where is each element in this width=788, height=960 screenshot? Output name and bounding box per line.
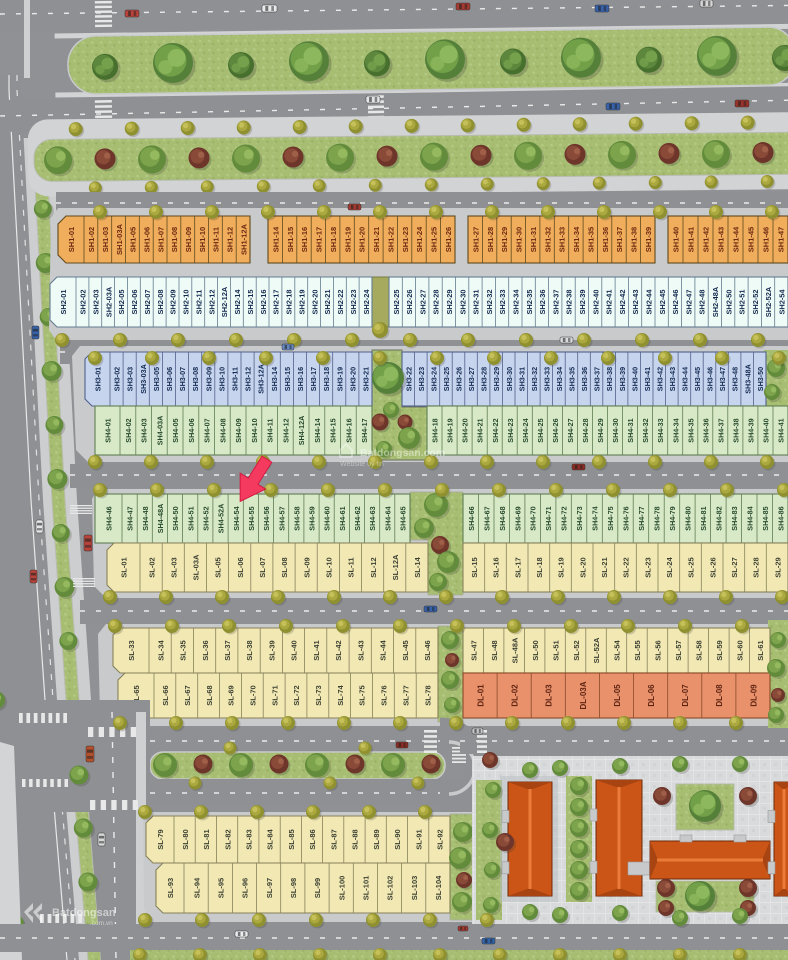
svg-text:SL-22: SL-22 bbox=[622, 557, 631, 577]
svg-text:SL-44: SL-44 bbox=[379, 639, 388, 660]
svg-text:SL-74: SL-74 bbox=[336, 684, 345, 705]
svg-text:SH3-32: SH3-32 bbox=[530, 367, 539, 391]
svg-text:SL-66: SL-66 bbox=[161, 685, 170, 705]
svg-text:SH4-63: SH4-63 bbox=[368, 506, 377, 530]
svg-text:SH1-22: SH1-22 bbox=[387, 227, 396, 252]
svg-text:SL-61: SL-61 bbox=[756, 640, 765, 660]
svg-text:SH3-25: SH3-25 bbox=[442, 367, 451, 391]
svg-text:SH1-18: SH1-18 bbox=[329, 227, 338, 252]
svg-text:SH2-35: SH2-35 bbox=[525, 289, 534, 314]
svg-text:SL-17: SL-17 bbox=[513, 557, 522, 577]
svg-text:SH4-69: SH4-69 bbox=[513, 506, 522, 530]
svg-text:SH3-26: SH3-26 bbox=[455, 367, 464, 391]
svg-text:SH2-23: SH2-23 bbox=[349, 289, 358, 314]
svg-text:SH4-16: SH4-16 bbox=[345, 418, 354, 442]
svg-text:SL-72: SL-72 bbox=[292, 685, 301, 705]
svg-text:SH4-84: SH4-84 bbox=[745, 506, 754, 530]
svg-text:SL-21: SL-21 bbox=[600, 557, 609, 577]
svg-text:SH1-39: SH1-39 bbox=[644, 227, 653, 252]
svg-text:SH4-34: SH4-34 bbox=[671, 418, 680, 442]
svg-text:SL-99: SL-99 bbox=[313, 878, 322, 898]
svg-text:SL-03: SL-03 bbox=[169, 557, 178, 577]
svg-text:SH2-54: SH2-54 bbox=[778, 289, 787, 315]
svg-text:SH1-11: SH1-11 bbox=[212, 227, 221, 252]
svg-text:SH4-78: SH4-78 bbox=[653, 506, 662, 530]
svg-text:SH3-27: SH3-27 bbox=[467, 367, 476, 391]
svg-text:SH1-23: SH1-23 bbox=[401, 227, 410, 252]
svg-text:SH3-42: SH3-42 bbox=[655, 367, 664, 391]
svg-text:SH4-48A: SH4-48A bbox=[156, 504, 165, 534]
svg-text:SH4-33: SH4-33 bbox=[656, 418, 665, 442]
svg-text:SH2-26: SH2-26 bbox=[405, 289, 414, 314]
svg-text:SH4-23: SH4-23 bbox=[506, 418, 515, 442]
svg-text:SL-56: SL-56 bbox=[654, 640, 663, 660]
svg-text:SH4-25: SH4-25 bbox=[536, 418, 545, 442]
svg-text:SH4-52: SH4-52 bbox=[201, 506, 210, 530]
svg-text:SH2-12A: SH2-12A bbox=[220, 286, 229, 317]
svg-text:SH2-33: SH2-33 bbox=[498, 289, 507, 314]
svg-text:SH4-26: SH4-26 bbox=[551, 418, 560, 442]
svg-text:SL-96: SL-96 bbox=[241, 878, 250, 898]
svg-text:SL-33: SL-33 bbox=[127, 640, 136, 660]
svg-text:SH2-40: SH2-40 bbox=[591, 289, 600, 314]
svg-text:Batdongsan: Batdongsan bbox=[52, 907, 116, 919]
svg-text:SH1-02: SH1-02 bbox=[87, 227, 96, 252]
svg-text:SH3-45: SH3-45 bbox=[693, 367, 702, 391]
svg-text:SH4-82: SH4-82 bbox=[715, 506, 724, 530]
svg-text:SL-47: SL-47 bbox=[469, 640, 478, 660]
svg-text:SL-84: SL-84 bbox=[266, 828, 275, 849]
svg-text:SL-68: SL-68 bbox=[205, 685, 214, 705]
svg-text:SH1-44: SH1-44 bbox=[732, 226, 741, 252]
svg-text:SH4-48: SH4-48 bbox=[141, 506, 150, 530]
svg-text:SH4-24: SH4-24 bbox=[521, 418, 530, 442]
svg-text:SH2-52A: SH2-52A bbox=[764, 286, 773, 317]
svg-text:SH1-14: SH1-14 bbox=[271, 226, 280, 252]
svg-text:SH3-07: SH3-07 bbox=[178, 367, 187, 391]
svg-text:SH4-15: SH4-15 bbox=[329, 418, 338, 442]
svg-text:SH1-16: SH1-16 bbox=[300, 227, 309, 252]
svg-text:DL-05: DL-05 bbox=[613, 684, 622, 707]
svg-text:SH4-05: SH4-05 bbox=[171, 418, 180, 442]
svg-text:SH4-83: SH4-83 bbox=[730, 506, 739, 530]
svg-text:SL-60: SL-60 bbox=[736, 640, 745, 660]
svg-text:SH2-27: SH2-27 bbox=[419, 289, 428, 314]
svg-text:SH3-20: SH3-20 bbox=[348, 367, 357, 391]
svg-text:SL-69: SL-69 bbox=[227, 685, 236, 705]
svg-text:SH4-06: SH4-06 bbox=[187, 418, 196, 442]
svg-text:SH4-79: SH4-79 bbox=[668, 506, 677, 530]
svg-text:SL-23: SL-23 bbox=[643, 557, 652, 577]
svg-text:SH4-10: SH4-10 bbox=[250, 418, 259, 442]
svg-text:SH4-86: SH4-86 bbox=[776, 506, 785, 530]
svg-text:SH3-03: SH3-03 bbox=[126, 367, 135, 391]
svg-text:SH4-12: SH4-12 bbox=[282, 418, 291, 442]
svg-text:SH4-29: SH4-29 bbox=[596, 418, 605, 442]
svg-text:SL-10: SL-10 bbox=[325, 557, 334, 577]
svg-text:SH2-48: SH2-48 bbox=[698, 289, 707, 314]
svg-text:SH2-39: SH2-39 bbox=[578, 289, 587, 314]
svg-text:SH4-57: SH4-57 bbox=[277, 506, 286, 530]
svg-text:SH4-68: SH4-68 bbox=[498, 506, 507, 530]
svg-text:SH4-21: SH4-21 bbox=[476, 418, 485, 442]
svg-text:SH1-30: SH1-30 bbox=[515, 227, 524, 252]
svg-text:DL-03: DL-03 bbox=[545, 684, 554, 707]
svg-text:SH2-46: SH2-46 bbox=[671, 289, 680, 314]
svg-text:SH1-34: SH1-34 bbox=[572, 226, 581, 252]
svg-text:SH4-27: SH4-27 bbox=[566, 418, 575, 442]
svg-text:SL-52: SL-52 bbox=[572, 640, 581, 660]
svg-text:SL-67: SL-67 bbox=[183, 685, 192, 705]
svg-text:SH4-56: SH4-56 bbox=[262, 506, 271, 530]
svg-text:SH1-47: SH1-47 bbox=[777, 227, 786, 252]
svg-text:SL-57: SL-57 bbox=[674, 640, 683, 660]
svg-text:SH3-37: SH3-37 bbox=[593, 367, 602, 391]
svg-text:SH1-46: SH1-46 bbox=[762, 227, 771, 252]
svg-text:SH4-11: SH4-11 bbox=[266, 419, 275, 443]
svg-text:SH3-24: SH3-24 bbox=[430, 367, 439, 391]
svg-text:DL-03A: DL-03A bbox=[579, 681, 588, 709]
svg-text:SH4-61: SH4-61 bbox=[338, 506, 347, 530]
svg-text:SH4-81: SH4-81 bbox=[699, 506, 708, 530]
svg-text:SH2-48A: SH2-48A bbox=[711, 286, 720, 317]
svg-text:SL-48A: SL-48A bbox=[510, 637, 519, 663]
svg-text:SH1-42: SH1-42 bbox=[702, 227, 711, 252]
svg-text:SH1-21: SH1-21 bbox=[372, 227, 381, 252]
svg-text:SL-91: SL-91 bbox=[414, 829, 423, 849]
svg-text:SL-12: SL-12 bbox=[369, 557, 378, 577]
svg-text:SH4-19: SH4-19 bbox=[446, 418, 455, 442]
svg-text:SH4-66: SH4-66 bbox=[467, 506, 476, 530]
svg-text:SH1-40: SH1-40 bbox=[672, 227, 681, 252]
svg-text:SH1-17: SH1-17 bbox=[315, 227, 324, 252]
svg-text:SH4-12A: SH4-12A bbox=[297, 416, 306, 446]
svg-text:Batdongsan.com: Batdongsan.com bbox=[360, 447, 445, 459]
svg-text:SH4-39: SH4-39 bbox=[747, 418, 756, 442]
svg-text:SH1-31: SH1-31 bbox=[529, 227, 538, 252]
svg-text:SH3-41: SH3-41 bbox=[643, 367, 652, 391]
svg-text:SH3-39: SH3-39 bbox=[618, 367, 627, 391]
svg-text:SH4-71: SH4-71 bbox=[544, 506, 553, 530]
svg-text:SH2-22: SH2-22 bbox=[336, 289, 345, 314]
svg-text:SH2-30: SH2-30 bbox=[458, 289, 467, 314]
svg-text:SL-86: SL-86 bbox=[308, 829, 317, 849]
svg-text:SL-16: SL-16 bbox=[492, 557, 501, 577]
svg-text:SL-78: SL-78 bbox=[423, 685, 432, 705]
svg-text:SH3-43: SH3-43 bbox=[668, 367, 677, 391]
svg-text:SH2-15: SH2-15 bbox=[246, 289, 255, 314]
svg-text:SH2-42: SH2-42 bbox=[618, 289, 627, 314]
svg-text:SH2-06: SH2-06 bbox=[130, 289, 139, 314]
svg-text:SH4-32: SH4-32 bbox=[641, 418, 650, 442]
svg-text:SL-100: SL-100 bbox=[337, 876, 346, 901]
svg-text:SL-02: SL-02 bbox=[147, 557, 156, 577]
svg-text:SH1-36: SH1-36 bbox=[601, 227, 610, 252]
svg-text:SL-08: SL-08 bbox=[280, 557, 289, 577]
svg-text:SL-89: SL-89 bbox=[372, 829, 381, 849]
svg-text:SH1-25: SH1-25 bbox=[430, 227, 439, 252]
svg-text:SH4-51: SH4-51 bbox=[186, 506, 195, 530]
svg-text:SH2-17: SH2-17 bbox=[272, 289, 281, 314]
svg-text:SH2-24: SH2-24 bbox=[362, 289, 371, 315]
svg-text:SH3-18: SH3-18 bbox=[322, 367, 331, 391]
svg-text:SH4-20: SH4-20 bbox=[461, 418, 470, 442]
svg-text:SH2-25: SH2-25 bbox=[392, 289, 401, 314]
svg-text:SH4-38: SH4-38 bbox=[732, 418, 741, 442]
svg-text:SH4-60: SH4-60 bbox=[323, 506, 332, 530]
svg-text:SH3-35: SH3-35 bbox=[568, 367, 577, 391]
svg-text:SH4-76: SH4-76 bbox=[622, 506, 631, 530]
svg-text:.com.vn: .com.vn bbox=[90, 920, 113, 927]
svg-text:SH3-19: SH3-19 bbox=[335, 367, 344, 391]
svg-text:SH3-31: SH3-31 bbox=[517, 367, 526, 391]
svg-text:SH4-30: SH4-30 bbox=[611, 418, 620, 442]
svg-text:SL-82: SL-82 bbox=[223, 829, 232, 849]
svg-text:SH2-02: SH2-02 bbox=[79, 289, 88, 314]
svg-text:SL-75: SL-75 bbox=[358, 685, 367, 705]
svg-text:SH4-22: SH4-22 bbox=[491, 418, 500, 442]
svg-text:SH1-15: SH1-15 bbox=[286, 227, 295, 252]
svg-text:SH4-37: SH4-37 bbox=[716, 418, 725, 442]
svg-text:SL-90: SL-90 bbox=[393, 829, 402, 849]
svg-text:SL-43: SL-43 bbox=[356, 640, 365, 660]
svg-text:SH2-47: SH2-47 bbox=[685, 289, 694, 314]
svg-text:SH1-27: SH1-27 bbox=[471, 227, 480, 252]
svg-text:SL-24: SL-24 bbox=[665, 556, 674, 577]
svg-text:SH2-01: SH2-01 bbox=[59, 289, 68, 314]
svg-text:SL-92: SL-92 bbox=[436, 829, 445, 849]
svg-text:SH2-21: SH2-21 bbox=[323, 289, 332, 314]
svg-text:SH4-07: SH4-07 bbox=[203, 418, 212, 442]
svg-text:SH2-08: SH2-08 bbox=[156, 289, 165, 314]
svg-text:SH2-32: SH2-32 bbox=[485, 289, 494, 314]
svg-text:SL-41: SL-41 bbox=[312, 640, 321, 660]
svg-text:SL-12A: SL-12A bbox=[391, 554, 400, 580]
svg-text:SH2-50: SH2-50 bbox=[724, 289, 733, 314]
svg-text:SL-54: SL-54 bbox=[613, 639, 622, 660]
svg-text:SL-85: SL-85 bbox=[287, 829, 296, 849]
svg-text:SH2-44: SH2-44 bbox=[645, 289, 654, 315]
svg-text:SH4-67: SH4-67 bbox=[482, 506, 491, 530]
svg-text:SL-42: SL-42 bbox=[334, 640, 343, 660]
svg-text:SH2-19: SH2-19 bbox=[297, 289, 306, 314]
svg-text:SL-18: SL-18 bbox=[535, 557, 544, 577]
svg-text:SH3-10: SH3-10 bbox=[217, 367, 226, 391]
svg-text:SH4-31: SH4-31 bbox=[626, 418, 635, 442]
svg-text:SH1-19: SH1-19 bbox=[343, 227, 352, 252]
svg-text:SH4-02: SH4-02 bbox=[124, 418, 133, 442]
svg-text:SH4-01: SH4-01 bbox=[104, 418, 113, 442]
svg-text:SH4-55: SH4-55 bbox=[247, 506, 256, 530]
svg-text:SL-83: SL-83 bbox=[245, 829, 254, 849]
svg-text:SH3-47: SH3-47 bbox=[718, 367, 727, 391]
svg-text:SH1-03A: SH1-03A bbox=[115, 224, 124, 255]
svg-text:SH3-33: SH3-33 bbox=[542, 367, 551, 391]
svg-text:SH2-10: SH2-10 bbox=[182, 289, 191, 314]
svg-text:SH1-07: SH1-07 bbox=[156, 227, 165, 252]
svg-text:SH4-47: SH4-47 bbox=[126, 506, 135, 530]
svg-text:SH1-26: SH1-26 bbox=[444, 227, 453, 252]
svg-text:SL-05: SL-05 bbox=[214, 557, 223, 577]
svg-text:SL-14: SL-14 bbox=[413, 556, 422, 577]
svg-text:SL-28: SL-28 bbox=[752, 557, 761, 577]
svg-text:SH1-35: SH1-35 bbox=[587, 227, 596, 252]
svg-text:SH2-07: SH2-07 bbox=[143, 289, 152, 314]
svg-text:SL-06: SL-06 bbox=[236, 557, 245, 577]
svg-text:SL-46: SL-46 bbox=[423, 640, 432, 660]
svg-text:SL-01: SL-01 bbox=[120, 557, 129, 577]
svg-text:SH3-34: SH3-34 bbox=[555, 367, 564, 391]
svg-text:SH3-30: SH3-30 bbox=[505, 367, 514, 391]
svg-text:SL-37: SL-37 bbox=[223, 640, 232, 660]
svg-text:SL-55: SL-55 bbox=[633, 640, 642, 660]
svg-text:SH2-05: SH2-05 bbox=[117, 289, 126, 314]
svg-text:SH4-75: SH4-75 bbox=[606, 506, 615, 530]
svg-text:DL-09: DL-09 bbox=[749, 684, 758, 707]
svg-text:SH1-28: SH1-28 bbox=[486, 227, 495, 252]
svg-text:SH2-03: SH2-03 bbox=[92, 289, 101, 314]
svg-text:SL-104: SL-104 bbox=[434, 875, 443, 900]
svg-text:SH1-29: SH1-29 bbox=[500, 227, 509, 252]
svg-text:SH2-36: SH2-36 bbox=[538, 289, 547, 314]
svg-text:SH2-34: SH2-34 bbox=[512, 289, 521, 315]
svg-text:SL-94: SL-94 bbox=[192, 877, 201, 898]
svg-text:SH4-73: SH4-73 bbox=[575, 506, 584, 530]
svg-text:SL-80: SL-80 bbox=[181, 829, 190, 849]
svg-text:SL-103: SL-103 bbox=[410, 876, 419, 901]
svg-text:SH1-05: SH1-05 bbox=[129, 227, 138, 252]
svg-text:SH3-08: SH3-08 bbox=[191, 367, 200, 391]
svg-text:SH4-50: SH4-50 bbox=[171, 506, 180, 530]
svg-text:SH2-37: SH2-37 bbox=[552, 289, 561, 314]
svg-text:SH3-28: SH3-28 bbox=[480, 367, 489, 391]
svg-text:SL-09: SL-09 bbox=[302, 557, 311, 577]
svg-text:SL-15: SL-15 bbox=[470, 557, 479, 577]
svg-text:SH3-38: SH3-38 bbox=[605, 367, 614, 391]
svg-text:SH4-72: SH4-72 bbox=[560, 506, 569, 530]
svg-text:SL-50: SL-50 bbox=[531, 640, 540, 660]
svg-text:SL-20: SL-20 bbox=[578, 557, 587, 577]
svg-text:SH2-31: SH2-31 bbox=[472, 289, 481, 314]
svg-text:SL-51: SL-51 bbox=[551, 640, 560, 660]
svg-text:DL-01: DL-01 bbox=[477, 684, 486, 707]
svg-text:SH1-33: SH1-33 bbox=[558, 227, 567, 252]
svg-text:SH1-32: SH1-32 bbox=[543, 227, 552, 252]
svg-text:SH4-40: SH4-40 bbox=[762, 418, 771, 442]
svg-text:SL-38: SL-38 bbox=[245, 640, 254, 660]
svg-text:SL-29: SL-29 bbox=[773, 557, 782, 577]
svg-text:SL-97: SL-97 bbox=[265, 878, 274, 898]
svg-text:SH4-46: SH4-46 bbox=[105, 506, 114, 530]
svg-text:SL-39: SL-39 bbox=[268, 640, 277, 660]
svg-text:SH3-11: SH3-11 bbox=[231, 367, 240, 391]
svg-text:SL-26: SL-26 bbox=[708, 557, 717, 577]
svg-text:SH2-03A: SH2-03A bbox=[104, 286, 113, 317]
svg-text:SH2-43: SH2-43 bbox=[631, 289, 640, 314]
svg-text:SH1-37: SH1-37 bbox=[615, 227, 624, 252]
svg-text:SH3-48: SH3-48 bbox=[731, 367, 740, 391]
svg-text:SH3-23: SH3-23 bbox=[417, 367, 426, 391]
svg-text:SL-25: SL-25 bbox=[687, 557, 696, 577]
svg-text:SL-70: SL-70 bbox=[249, 685, 258, 705]
svg-text:SH3-50: SH3-50 bbox=[756, 367, 765, 391]
svg-text:SH2-52: SH2-52 bbox=[751, 289, 760, 314]
svg-text:SH2-41: SH2-41 bbox=[605, 289, 614, 314]
svg-text:SH3-48A: SH3-48A bbox=[743, 364, 752, 394]
svg-text:DL-02: DL-02 bbox=[511, 684, 520, 707]
svg-text:SH2-28: SH2-28 bbox=[432, 289, 441, 314]
svg-text:SH4-18: SH4-18 bbox=[431, 418, 440, 442]
svg-text:SL-95: SL-95 bbox=[217, 878, 226, 898]
svg-text:SH3-36: SH3-36 bbox=[580, 367, 589, 391]
svg-text:SH3-46: SH3-46 bbox=[706, 367, 715, 391]
svg-text:SH2-51: SH2-51 bbox=[738, 289, 747, 314]
svg-text:SL-79: SL-79 bbox=[156, 829, 165, 849]
svg-text:SL-77: SL-77 bbox=[401, 685, 410, 705]
svg-text:SH2-09: SH2-09 bbox=[169, 289, 178, 314]
svg-text:SL-19: SL-19 bbox=[557, 557, 566, 577]
svg-text:SH3-21: SH3-21 bbox=[362, 367, 371, 391]
svg-text:SL-34: SL-34 bbox=[156, 639, 165, 660]
svg-text:SL-73: SL-73 bbox=[314, 685, 323, 705]
svg-text:SL-93: SL-93 bbox=[166, 878, 175, 898]
svg-text:SL-07: SL-07 bbox=[258, 557, 267, 577]
svg-text:SH2-45: SH2-45 bbox=[658, 289, 667, 314]
svg-text:SH4-03: SH4-03 bbox=[140, 418, 149, 442]
svg-text:SH4-03A: SH4-03A bbox=[156, 416, 165, 446]
svg-text:SL-102: SL-102 bbox=[386, 876, 395, 901]
svg-text:SH4-65: SH4-65 bbox=[398, 506, 407, 530]
svg-text:SH3-40: SH3-40 bbox=[630, 367, 639, 391]
svg-text:SH2-29: SH2-29 bbox=[445, 289, 454, 314]
svg-text:SH4-74: SH4-74 bbox=[591, 506, 600, 530]
svg-text:SH1-03: SH1-03 bbox=[101, 227, 110, 252]
svg-text:SH4-41: SH4-41 bbox=[777, 418, 786, 442]
svg-text:SH4-70: SH4-70 bbox=[529, 506, 538, 530]
svg-text:SH3-03A: SH3-03A bbox=[139, 364, 148, 394]
svg-text:SH4-64: SH4-64 bbox=[383, 506, 392, 530]
svg-text:DL-07: DL-07 bbox=[681, 684, 690, 707]
svg-text:Website uy tin: Website uy tin bbox=[340, 461, 384, 468]
svg-text:SH4-35: SH4-35 bbox=[686, 418, 695, 442]
svg-text:SH2-12: SH2-12 bbox=[207, 289, 216, 314]
svg-text:SH2-20: SH2-20 bbox=[310, 289, 319, 314]
svg-text:SL-48: SL-48 bbox=[490, 640, 499, 660]
svg-text:SH3-05: SH3-05 bbox=[152, 367, 161, 391]
svg-text:SH3-06: SH3-06 bbox=[165, 367, 174, 391]
svg-text:SH3-14: SH3-14 bbox=[270, 367, 279, 391]
svg-text:DL-08: DL-08 bbox=[715, 684, 724, 707]
svg-text:SH3-12: SH3-12 bbox=[244, 367, 253, 391]
svg-text:SH4-85: SH4-85 bbox=[761, 506, 770, 530]
svg-text:SH3-17: SH3-17 bbox=[309, 367, 318, 391]
svg-text:SL-35: SL-35 bbox=[179, 640, 188, 660]
svg-text:SH3-44: SH3-44 bbox=[681, 367, 690, 391]
svg-text:SH3-01: SH3-01 bbox=[94, 367, 103, 391]
svg-text:SH3-02: SH3-02 bbox=[113, 367, 122, 391]
svg-text:DL-06: DL-06 bbox=[647, 684, 656, 707]
svg-text:SH1-01: SH1-01 bbox=[67, 227, 76, 252]
svg-text:SH4-52A: SH4-52A bbox=[217, 504, 226, 534]
svg-text:SH1-24: SH1-24 bbox=[415, 226, 424, 252]
svg-text:SH3-16: SH3-16 bbox=[296, 367, 305, 391]
svg-text:SH1-38: SH1-38 bbox=[630, 227, 639, 252]
svg-text:SL-36: SL-36 bbox=[201, 640, 210, 660]
svg-text:SL-87: SL-87 bbox=[329, 829, 338, 849]
svg-text:SH4-58: SH4-58 bbox=[292, 506, 301, 530]
svg-text:SH2-38: SH2-38 bbox=[565, 289, 574, 314]
svg-text:SH4-80: SH4-80 bbox=[684, 506, 693, 530]
